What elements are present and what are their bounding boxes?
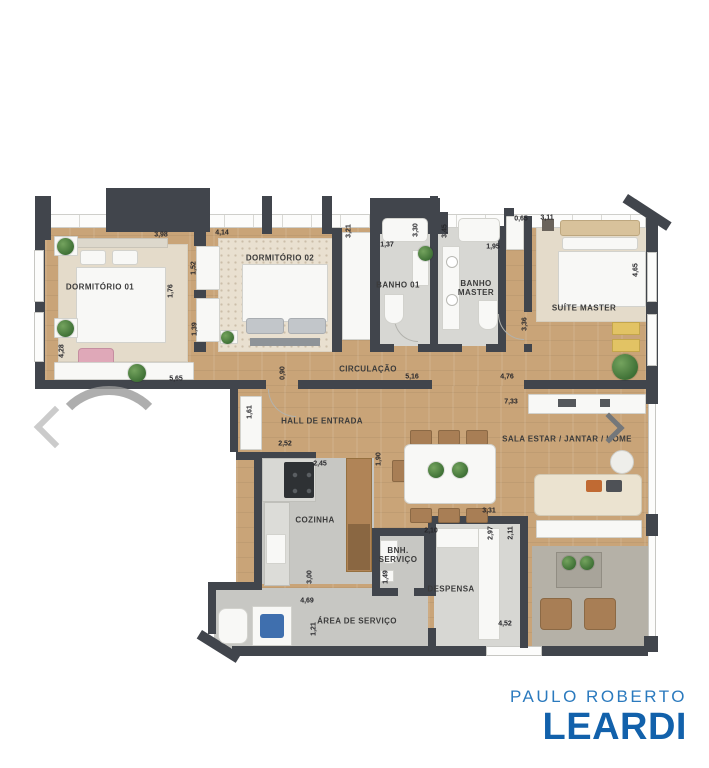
wall-segment <box>370 344 394 352</box>
dim-label: 3,11 <box>540 215 553 222</box>
dining-table <box>404 444 496 504</box>
bed-pillow <box>246 318 284 334</box>
window-right-1 <box>647 252 657 302</box>
bed-pillow-row <box>562 237 638 250</box>
dining-chair <box>438 430 460 445</box>
dim-label: 4,69 <box>300 598 314 605</box>
wall-segment <box>418 344 462 352</box>
wall-bottom <box>542 646 648 656</box>
dim-label: 1,61 <box>247 405 254 419</box>
wall-segment <box>646 388 658 404</box>
cooktop <box>284 462 314 498</box>
wall-segment <box>524 344 532 352</box>
plant <box>57 238 74 255</box>
dim-label: 4,28 <box>59 344 66 358</box>
wall-segment <box>524 380 646 389</box>
room-label-bnh-servico: BNH. SERVIÇO <box>374 546 422 564</box>
door-bottom <box>486 646 542 656</box>
dining-chair <box>410 508 432 523</box>
dim-label: 3,30 <box>413 223 420 237</box>
washing-machine-door <box>260 614 284 638</box>
floor-lamp <box>610 450 634 474</box>
room-label-area-de-servico: ÁREA DE SERVIÇO <box>317 616 397 625</box>
dim-label: 1,52 <box>191 261 198 275</box>
room-label-suite-master: SUÍTE MASTER <box>552 303 616 312</box>
dim-label: 3,36 <box>522 317 529 331</box>
bed-duvet <box>558 251 646 307</box>
plant <box>418 246 433 261</box>
room-label-banho-master: BANHO MASTER <box>450 279 502 297</box>
plant <box>452 462 468 478</box>
sofa-cushion-orange <box>586 480 602 492</box>
dim-label: 2,10 <box>424 528 438 535</box>
kitchen-sink <box>266 534 286 564</box>
dim-label: 3,00 <box>307 570 314 584</box>
dim-label: 1,95 <box>486 244 500 251</box>
dim-label: 1,37 <box>380 242 394 249</box>
wall-segment <box>430 196 438 352</box>
wall-segment <box>194 290 206 298</box>
dim-label: 3,45 <box>442 224 449 238</box>
dim-label: 0,65 <box>514 216 528 223</box>
dim-label: 4,65 <box>633 263 640 277</box>
window-right-2 <box>647 314 657 366</box>
wall-segment <box>332 228 342 352</box>
armchair-wood <box>540 598 572 630</box>
closet <box>196 298 220 342</box>
dim-label: 1,76 <box>168 284 175 298</box>
dim-label: 2,52 <box>278 441 292 448</box>
basin <box>446 256 458 268</box>
floorplan-image[interactable]: DORMITÓRIO 01 DORMITÓRIO 02 BANHO 01 BAN… <box>0 0 709 768</box>
kitchen-cabinet <box>348 524 370 570</box>
plant <box>428 462 444 478</box>
wall-segment <box>370 228 380 352</box>
pantry-shelf <box>478 528 500 640</box>
bed-duvet <box>76 267 166 343</box>
closet <box>196 246 220 290</box>
plant <box>580 556 594 570</box>
wall-segment <box>208 588 216 634</box>
wall-segment <box>380 528 424 536</box>
ottoman-yellow <box>612 322 640 335</box>
wall-segment <box>644 636 658 652</box>
toilet <box>478 300 498 330</box>
wall-segment <box>428 628 436 648</box>
dim-label: 5,16 <box>405 374 419 381</box>
wall-segment <box>254 452 262 586</box>
dim-label: 5,65 <box>169 376 183 383</box>
dim-label: 3,31 <box>482 508 496 515</box>
wall-segment <box>298 380 432 389</box>
ottoman-yellow <box>612 339 640 352</box>
brand-name-main: LEARDI <box>510 708 687 746</box>
dim-label: 1,90 <box>376 452 383 466</box>
wardrobe <box>342 232 372 340</box>
dim-label: 4,76 <box>500 374 514 381</box>
window-left-1 <box>34 250 44 302</box>
dim-label: 4,14 <box>215 230 229 237</box>
bathtub <box>458 218 500 242</box>
bed-duvet <box>242 264 328 322</box>
dining-chair <box>466 430 488 445</box>
wall-segment <box>236 380 266 389</box>
bed-pillow <box>80 250 106 265</box>
dim-label: 3,21 <box>346 224 353 238</box>
wall-segment <box>194 228 206 246</box>
wall-bottom <box>232 646 486 656</box>
room-label-hall-de-entrada: HALL DE ENTRADA <box>281 416 363 425</box>
plant <box>57 320 74 337</box>
carousel-arc-decoration <box>48 386 170 508</box>
tv-console <box>536 520 642 538</box>
wall-segment <box>106 188 210 232</box>
dim-label: 3,98 <box>154 232 168 239</box>
brand-name-top: PAULO ROBERTO <box>510 688 687 705</box>
listing-photo-viewer: DORMITÓRIO 01 DORMITÓRIO 02 BANHO 01 BAN… <box>0 0 709 768</box>
bed-pillow-row <box>560 220 640 236</box>
dim-label: 1,21 <box>311 622 318 636</box>
dining-chair <box>410 430 432 445</box>
dim-label: 0,90 <box>280 366 287 380</box>
wall-segment <box>194 342 206 352</box>
dim-label: 2,97 <box>488 526 495 540</box>
room-label-despensa: DESPENSA <box>427 584 474 593</box>
armchair-wood <box>584 598 616 630</box>
plant <box>562 556 576 570</box>
bathtub <box>382 218 428 242</box>
wall-segment <box>646 514 658 536</box>
wall-segment <box>208 582 262 590</box>
plant <box>128 364 146 382</box>
room-label-dormitorio-01: DORMITÓRIO 01 <box>66 282 134 291</box>
dim-label: 2,45 <box>313 461 327 468</box>
bed-headboard <box>250 338 320 346</box>
water-heater <box>218 608 248 644</box>
dim-label: 1,39 <box>192 322 199 336</box>
dining-chair <box>438 508 460 523</box>
room-label-banho-01: BANHO 01 <box>376 280 420 289</box>
sideboard-item <box>600 399 610 407</box>
sofa-cushion-dark <box>606 480 622 492</box>
plant <box>221 331 234 344</box>
bed-headboard <box>74 238 168 248</box>
plant <box>612 354 638 380</box>
wall-segment <box>372 588 398 596</box>
wall-segment <box>524 216 532 312</box>
room-label-circulacao: CIRCULAÇÃO <box>339 364 397 373</box>
wall-segment <box>486 344 498 352</box>
dim-label: 1,49 <box>383 570 390 584</box>
sideboard <box>528 394 646 414</box>
window-left-2 <box>34 312 44 362</box>
dim-label: 2,11 <box>508 526 515 539</box>
dim-label: 4,52 <box>498 621 512 628</box>
sideboard-item <box>558 399 576 407</box>
wall-segment <box>230 388 238 452</box>
brand-logo: PAULO ROBERTO LEARDI <box>510 688 687 746</box>
wall-segment <box>35 196 51 240</box>
wall-segment <box>322 196 332 234</box>
room-label-dormitorio-02: DORMITÓRIO 02 <box>246 253 314 262</box>
room-label-cozinha: COZINHA <box>295 515 334 524</box>
wall-segment <box>520 516 528 648</box>
bed-pillow <box>112 250 138 265</box>
bed-pillow <box>288 318 326 334</box>
wall-segment <box>262 196 272 234</box>
dim-label: 7,33 <box>504 399 518 406</box>
toilet <box>384 294 404 324</box>
